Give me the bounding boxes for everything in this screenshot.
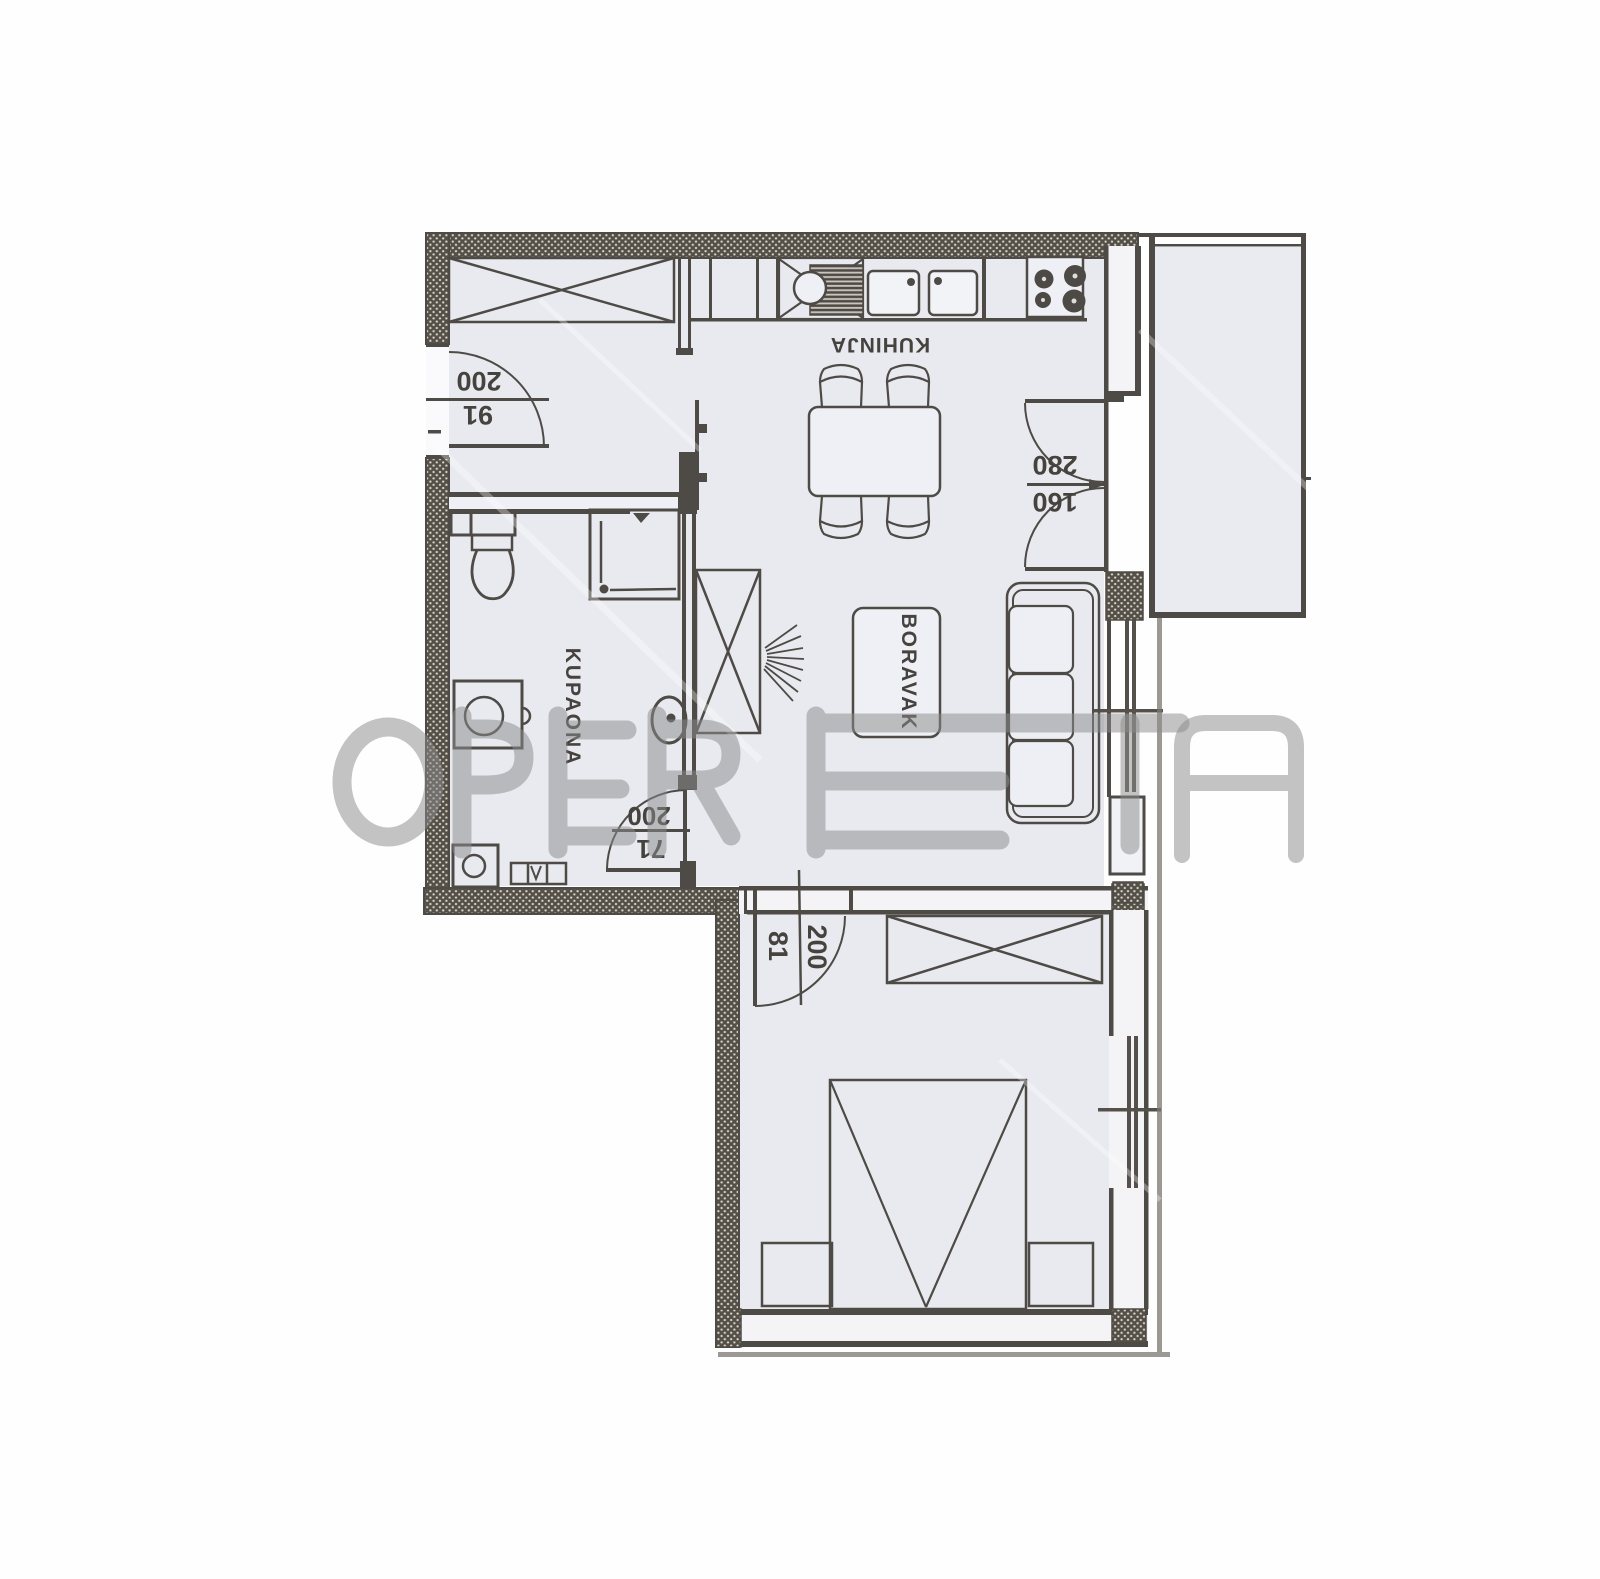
svg-text:91: 91	[463, 400, 493, 430]
svg-text:200: 200	[802, 924, 832, 969]
svg-text:160: 160	[1032, 487, 1077, 517]
svg-text:KUHINJA: KUHINJA	[830, 333, 930, 356]
svg-text:BORAVAK: BORAVAK	[897, 613, 920, 730]
svg-text:200: 200	[456, 366, 501, 396]
svg-text:81: 81	[763, 931, 793, 961]
svg-text:280: 280	[1032, 450, 1077, 480]
